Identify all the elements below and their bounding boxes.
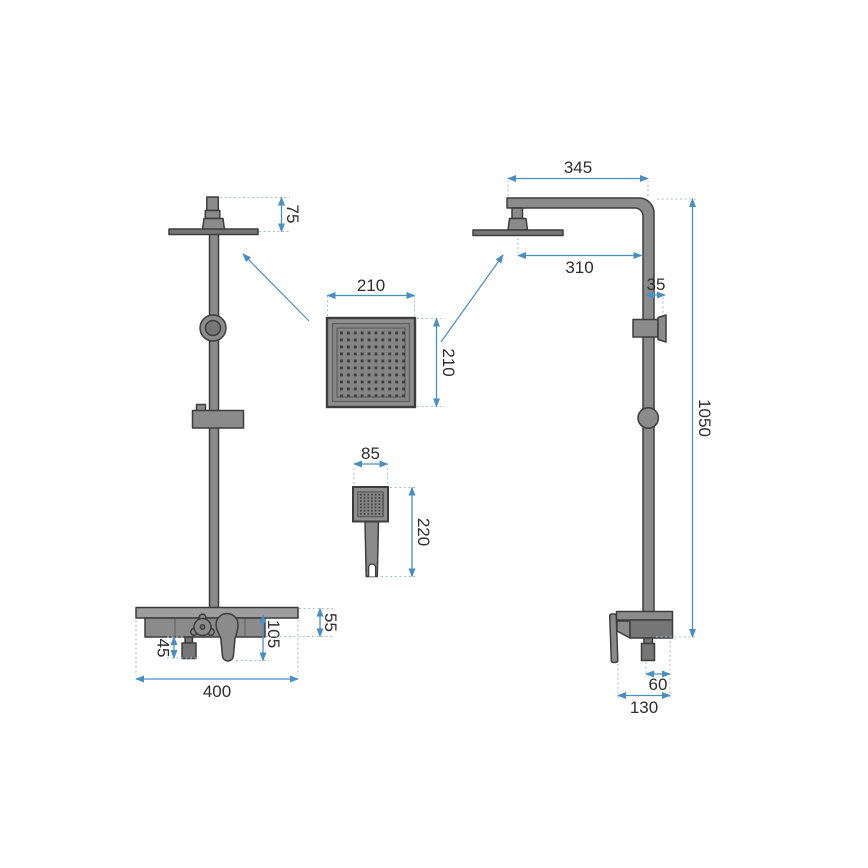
- dim-label-rain-head-width: 210: [357, 276, 385, 295]
- arm-connector-front: [203, 197, 225, 230]
- rain-head-edge-front: [169, 229, 258, 235]
- mixer-shelf-front: [136, 608, 298, 619]
- dim-label-rain-head-height: 210: [439, 348, 458, 376]
- bracket-escutcheon: [658, 315, 666, 342]
- leader-arrow-right-icon: [441, 255, 503, 342]
- outlet-stem-front: [185, 637, 193, 643]
- dim-hand-shower-width: 85: [354, 444, 388, 484]
- dim-label-outlet-offset: 60: [649, 675, 668, 694]
- dim-label-lever-drop: 105: [264, 620, 283, 648]
- handle-hook-hole: [369, 564, 376, 576]
- pipe-knob-front: [200, 315, 226, 341]
- rain-head-detail: 210 210: [243, 254, 503, 407]
- leader-arrow-left-icon: [243, 254, 309, 321]
- dim-label-head-offset: 75: [283, 205, 302, 224]
- dim-label-bracket-offset: 35: [647, 275, 666, 294]
- dim-column-height: 1050: [656, 199, 714, 637]
- dim-label-outlet-height: 45: [154, 639, 173, 658]
- dim-label-hand-shower-width: 85: [361, 444, 380, 463]
- dim-label-head-reach: 310: [565, 258, 593, 277]
- mixer-shelf-side: [617, 612, 673, 621]
- arm-connector-side: [508, 208, 528, 230]
- dim-label-hand-shower-length: 220: [414, 518, 433, 546]
- front-view: [136, 197, 298, 661]
- drawing-canvas: 75 45 105 55 400: [0, 0, 868, 868]
- water-outlet-side: [642, 644, 655, 661]
- dim-label-arm-length: 345: [564, 158, 592, 177]
- dim-arm-length: 345: [508, 158, 648, 196]
- dim-head-offset: 75: [220, 198, 302, 232]
- mixer-side: [610, 612, 673, 663]
- rain-head-nozzles: [337, 328, 405, 397]
- rain-head-edge-side: [473, 230, 563, 236]
- dim-label-body-depth: 130: [630, 698, 658, 717]
- outlet-stem-side: [644, 638, 653, 644]
- dim-head-reach: 310: [518, 238, 642, 277]
- mixer-body-side: [630, 620, 673, 638]
- dim-rain-head-height: 210: [417, 319, 458, 407]
- dim-label-column-height: 1050: [695, 399, 714, 437]
- pipe-knob-side: [638, 408, 658, 428]
- dim-label-total-width: 400: [203, 682, 231, 701]
- dim-label-bar-height: 55: [321, 613, 340, 632]
- mixer-lever-side: [610, 614, 618, 663]
- dim-rain-head-width: 210: [328, 276, 415, 316]
- water-outlet-front: [182, 643, 196, 659]
- shower-set-technical-drawing: 75 45 105 55 400: [0, 0, 868, 868]
- hand-shower-nozzles: [358, 492, 384, 517]
- hand-shower-detail: 85 220: [353, 444, 433, 577]
